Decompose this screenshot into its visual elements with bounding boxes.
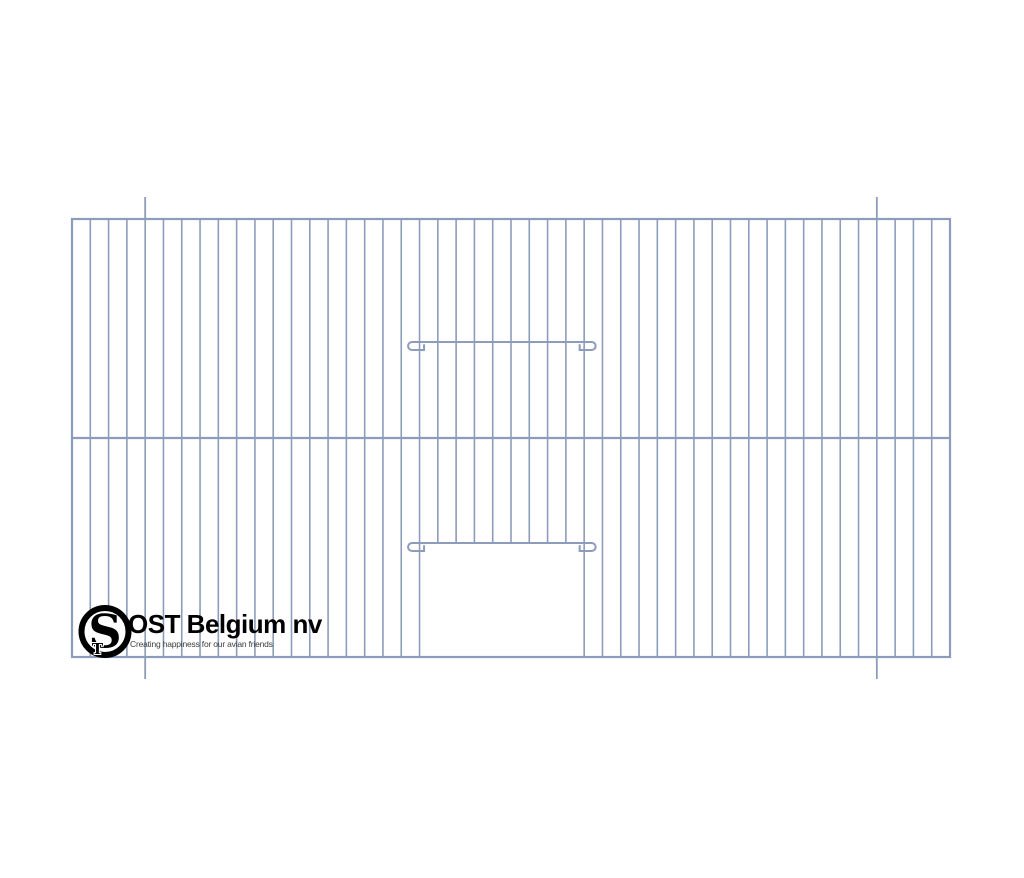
cage-front-drawing	[0, 0, 1024, 878]
door-latch-wire	[408, 342, 596, 350]
monogram-letter-t: T	[92, 640, 104, 658]
door-latch-wire	[408, 543, 596, 551]
brand-name: OST Belgium nv	[128, 611, 322, 637]
brand-tagline: Creating happiness for our avian friends	[130, 639, 273, 650]
product-drawing-page: S T OST Belgium nv Creating happiness fo…	[0, 0, 1024, 878]
ost-monogram-icon: S T	[77, 603, 134, 660]
